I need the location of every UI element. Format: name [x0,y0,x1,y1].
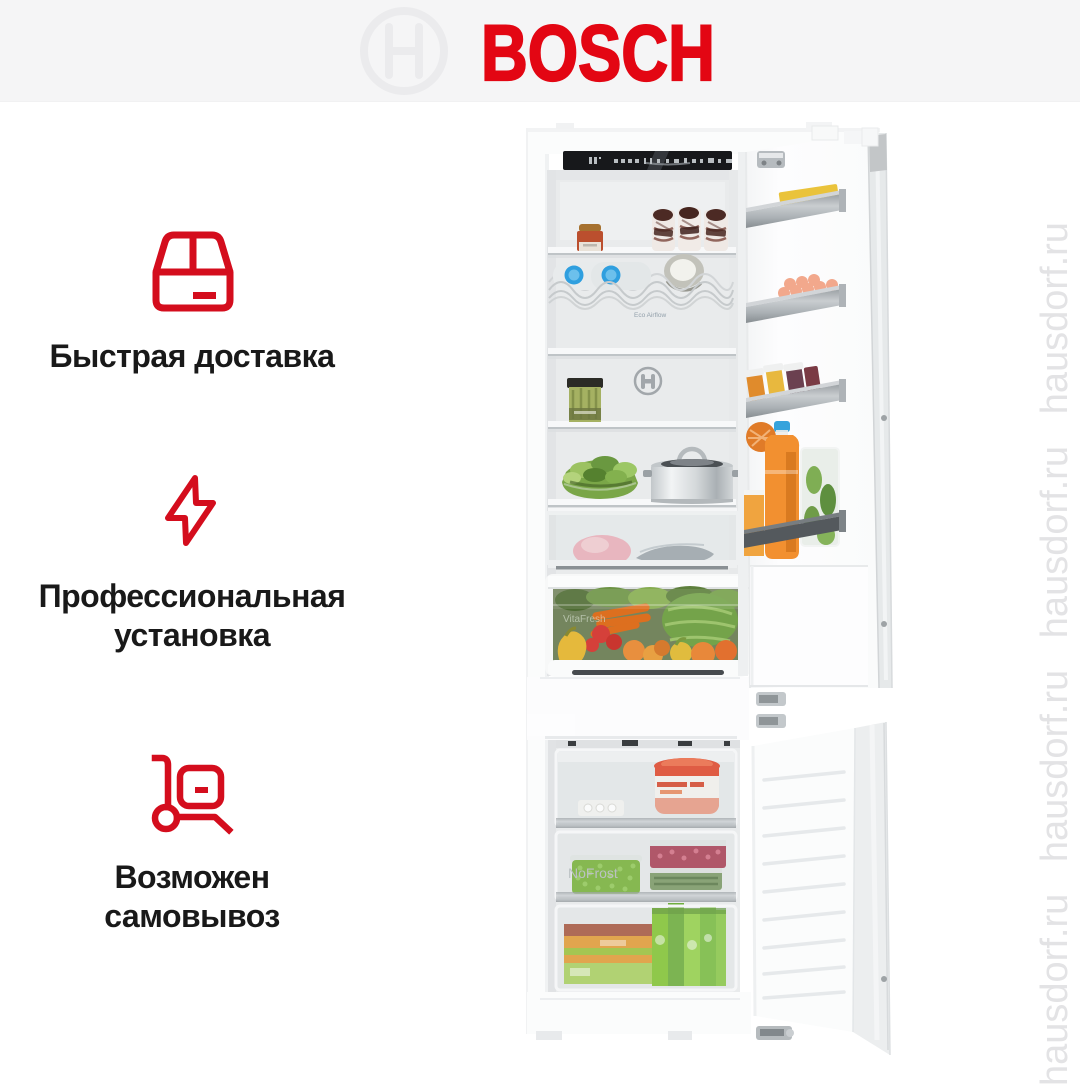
svg-text:Eco Airflow: Eco Airflow [634,312,666,319]
svg-text:VitaFresh: VitaFresh [563,614,606,625]
